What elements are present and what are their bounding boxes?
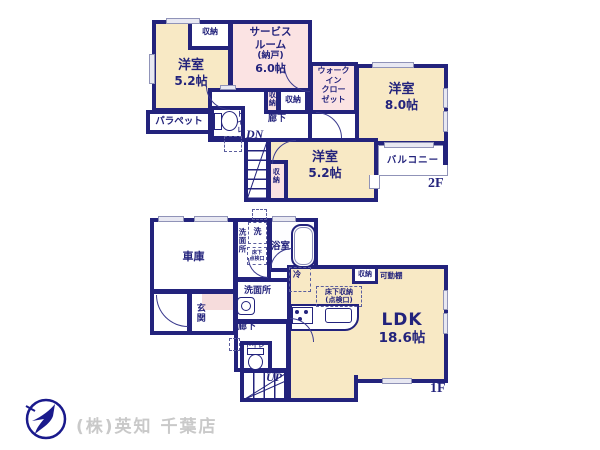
label-wic: ウォーク イン クロー ゼット [309, 66, 358, 104]
dashed-toilet-basin [229, 338, 240, 351]
ldk-size: 18.6帖 [352, 330, 452, 346]
dashed-washer-supply [252, 209, 267, 220]
label-balcony: バルコニー [378, 155, 448, 166]
label-closet-bedroom-b: 収納 [272, 168, 280, 194]
label-parapet: パラペット [146, 116, 212, 127]
label-hallway-1f: 廊下 [238, 322, 256, 333]
underfloor-storage-l2: (点検口) [316, 296, 362, 304]
vanity-sink-basin [241, 301, 251, 311]
floorplan-canvas: 洋室 5.2帖 収納 サービス ルーム (納戸) 6.0帖 収納 収納 ウォーク… [0, 0, 600, 450]
label-garage: 車庫 [150, 250, 237, 263]
label-closet-top: 収納 [188, 27, 232, 37]
label-dn: DN [246, 127, 263, 141]
door-arc-bedroom-8 [316, 112, 342, 138]
label-toilet-1f: トイレ [245, 342, 265, 350]
wic-l4: ゼット [309, 95, 358, 105]
window-bath [272, 216, 296, 222]
label-bedroom-8: 洋室 8.0帖 [355, 82, 448, 112]
bedroom-a-name: 洋室 [152, 58, 230, 74]
label-washroom-upper: 洗面所 [238, 228, 247, 270]
balcony-step [369, 175, 380, 189]
window-balcony-door [384, 142, 434, 148]
kitchen-sink [325, 308, 352, 323]
label-fridge: 冷 [293, 270, 301, 280]
toilet-bowl-1f [248, 354, 263, 370]
label-underfloor-hatch: 床下 点検口 [246, 250, 268, 262]
service-room-l3: (納戸) [229, 51, 312, 62]
bathtub-inner [294, 227, 313, 265]
company-logo [22, 394, 70, 442]
label-closet-ldk: 収納 [352, 270, 378, 278]
garage-door-1 [158, 216, 184, 222]
label-movable-shelf: 可動棚 [380, 271, 403, 280]
bedroom-8-size: 8.0帖 [355, 98, 448, 112]
garage-door-2 [194, 216, 228, 222]
label-up: UP [266, 370, 282, 384]
service-room-l2: ルーム [229, 39, 312, 52]
dashed-box-2f-landing [224, 136, 242, 152]
label-entrance: 玄関 [194, 303, 205, 331]
wic-l2: イン [309, 76, 358, 86]
label-2f: 2F [428, 176, 444, 193]
bedroom-b-size: 5.2帖 [285, 166, 365, 180]
label-closet-mini-h: 収納 [277, 95, 309, 105]
label-washer: 洗 [248, 227, 267, 237]
bird-logo-icon [22, 394, 70, 442]
label-hallway-2f: 廊下 [268, 114, 286, 125]
window-ldk-bottom [382, 378, 412, 384]
bedroom-8-name: 洋室 [355, 82, 448, 98]
service-room-size: 6.0帖 [229, 62, 312, 75]
label-bedroom-b: 洋室 5.2帖 [285, 150, 365, 180]
label-bath: 浴室 [271, 241, 290, 252]
company-name: (株)英知 千葉店 [76, 412, 217, 437]
stove-burner-2 [304, 310, 308, 314]
entrance-step [202, 294, 233, 310]
bedroom-b-name: 洋室 [285, 150, 365, 166]
window-bedroom-8-right-2 [443, 111, 448, 132]
label-washroom-lower: 洗面所 [244, 286, 271, 297]
label-underfloor-storage: 床下収納 (点検口) [316, 288, 362, 305]
label-1f: 1F [430, 381, 446, 398]
label-toilet-2f: トイレ [236, 110, 244, 138]
label-ldk: LDK 18.6帖 [352, 310, 452, 347]
stove-burner-1 [295, 310, 299, 314]
underfloor-hatch-l2: 点検口 [246, 256, 268, 262]
service-room-l1: サービス [229, 26, 312, 39]
bedroom-a-size: 5.2帖 [152, 74, 230, 88]
label-closet-mini-v: 収納 [268, 91, 276, 113]
window-bedroom-8-top [372, 62, 414, 68]
ldk-name: LDK [352, 310, 452, 330]
label-bedroom-a: 洋室 5.2帖 [152, 58, 230, 88]
ldk-seam-patch [291, 375, 354, 383]
label-service-room: サービス ルーム (納戸) 6.0帖 [229, 26, 312, 75]
wic-l1: ウォーク [309, 66, 358, 76]
window-bedroom-a-top [166, 18, 200, 24]
window-ldk-right-1 [443, 290, 448, 310]
wic-l3: クロー [309, 85, 358, 95]
